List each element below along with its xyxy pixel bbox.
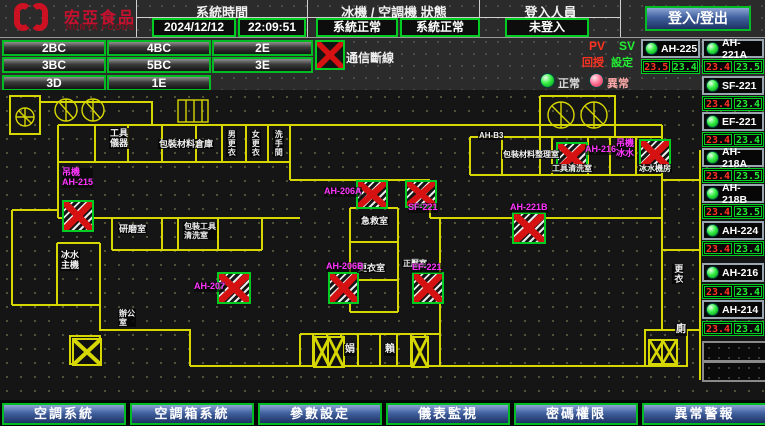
stairs-icon [16, 99, 607, 128]
system-time-value: 22:09:51 [238, 18, 306, 37]
header-bar: 宏亞食品 HUNYA FOODS 系統時間 2024/12/12 22:09:5… [0, 0, 765, 38]
room-label: 辦公 室 [118, 309, 136, 327]
offline-unit-ah-206b[interactable] [328, 272, 359, 304]
unit-name: AH-214 [722, 304, 758, 316]
unit-sf-221-values: 23.4 23.4 [702, 96, 764, 111]
unit-name: AH-225 [661, 43, 697, 55]
hunya-logo-icon [14, 3, 60, 33]
status-led-icon [706, 151, 719, 164]
unit-ah-218b-values: 23.4 23.5 [702, 204, 764, 219]
plan-unit-label: SF-221 [408, 203, 438, 213]
sv-value: 23.5 [734, 206, 762, 217]
pv-value: 23.4 [704, 134, 732, 145]
room-label: 冰水 主機 [60, 250, 80, 271]
separator-line [620, 0, 621, 38]
elevator-icon [661, 339, 678, 365]
unit-ah-218b[interactable]: AH-218B [702, 184, 764, 203]
room-label: 工具清洗室 [551, 164, 593, 173]
separator-line [136, 0, 137, 38]
login-user-value: 未登入 [505, 18, 589, 37]
unit-ah-218a[interactable]: AH-218A [702, 148, 764, 167]
plan-unit-label: AH-206A [324, 187, 362, 197]
sv-value: 23.5 [734, 170, 762, 181]
status-led-icon [706, 224, 719, 237]
room-label: 冰水機房 [638, 164, 672, 173]
unit-ah-216[interactable]: AH-216 [702, 263, 764, 282]
unit-ah-221a-values: 23.4 23.5 [702, 59, 764, 74]
sv-sub-label: 設定 [611, 54, 633, 70]
plan-unit-label: AH-221B [510, 203, 548, 213]
plan-unit-label: 吊機 冰水 [616, 139, 634, 159]
room-label: 急救室 [360, 216, 389, 226]
floor-button-3e[interactable]: 3E [212, 57, 313, 73]
unit-ah-221a[interactable]: AH-221A [702, 39, 764, 58]
unit-ah-214-values: 23.4 23.4 [702, 321, 764, 336]
room-label: 男更衣 [226, 130, 237, 157]
brand-subtitle: HUNYA FOODS [66, 23, 135, 32]
unit-ah-216-values: 23.4 23.4 [702, 284, 764, 299]
separator-line [0, 37, 765, 38]
pv-value: 23.4 [704, 170, 732, 181]
sv-value: 23.4 [734, 243, 762, 254]
elevator-icon [411, 336, 429, 368]
unit-name: AH-218B [722, 182, 762, 206]
nav-button-parameter-settings[interactable]: 參數設定 [258, 403, 382, 425]
nav-button-meter-monitor[interactable]: 儀表監視 [386, 403, 510, 425]
status-led-icon [645, 42, 658, 55]
unit-name: SF-221 [722, 80, 756, 92]
pv-value: 23.4 [704, 286, 732, 297]
empty-unit-slot [702, 341, 765, 362]
offline-unit-ef-221[interactable] [412, 272, 444, 304]
room-label: 賴 [384, 344, 396, 356]
system-date-value: 2024/12/12 [152, 18, 236, 37]
pv-header: PV [589, 39, 605, 53]
abnormal-led-icon [589, 73, 604, 88]
room-label: 工具 儀器 [109, 128, 129, 149]
status-led-icon [706, 187, 719, 200]
unit-name: AH-221A [722, 37, 762, 61]
normal-label: 正常 [558, 75, 580, 91]
floor-button-1e[interactable]: 1E [107, 75, 211, 91]
room-label: 研磨室 [118, 224, 147, 234]
elevator-icon [327, 336, 345, 368]
room-label: 包裝材料整理室 [502, 150, 560, 159]
sv-value: 23.4 [734, 134, 762, 145]
unit-name: AH-224 [722, 225, 758, 237]
status-led-icon [706, 79, 719, 92]
unit-name: AH-216 [722, 267, 758, 279]
bottom-nav-bar: 空調系統 空調箱系統 參數設定 儀表監視 密碼權限 異常警報 [0, 400, 765, 426]
pv-value: 23.4 [704, 323, 732, 334]
plan-unit-label: 吊機 AH-215 [62, 168, 93, 188]
abnormal-label: 異常 [607, 75, 629, 91]
nav-button-ahu-system[interactable]: 空調箱系統 [130, 403, 254, 425]
plan-unit-label: AH-216 [585, 145, 616, 155]
unit-name: AH-218A [722, 146, 762, 170]
unit-ah-224-values: 23.4 23.4 [702, 241, 764, 256]
room-label: 包裝工具 清洗室 [183, 222, 217, 240]
room-label: 洗手間 [273, 130, 284, 157]
pv-sub-label: 回授 [582, 54, 604, 70]
floor-plan: 工具 儀器 包裝材料倉庫 男更衣 女更衣 洗手間 AH-B3 包裝材料整理室 工… [0, 90, 765, 402]
comm-loss-label: 通信斷線 [346, 49, 394, 66]
sv-value: 23.5 [734, 61, 762, 72]
separator-line [307, 0, 308, 38]
unit-name: EF-221 [722, 116, 756, 128]
nav-button-ac-system[interactable]: 空調系統 [2, 403, 126, 425]
floor-button-2bc[interactable]: 2BC [2, 40, 106, 56]
login-logout-button[interactable]: 登入/登出 [645, 6, 751, 31]
pv-value: 23.4 [704, 243, 732, 254]
status-led-icon [706, 42, 719, 55]
room-label: AH-B3 [478, 131, 504, 140]
sv-value: 23.4 [672, 61, 699, 72]
room-label: 娟 [344, 344, 356, 356]
unit-ah-225[interactable]: AH-225 [641, 39, 700, 58]
chiller-status-value: 系統正常 [316, 18, 398, 37]
floor-button-5bc[interactable]: 5BC [107, 57, 211, 73]
sv-value: 23.4 [734, 98, 762, 109]
pv-value: 23.4 [704, 206, 732, 217]
elevator-icon [72, 338, 102, 366]
pv-value: 23.4 [704, 98, 732, 109]
nav-button-alarm[interactable]: 異常警報 [642, 403, 765, 425]
offline-unit-ah-221b[interactable] [512, 212, 546, 244]
floor-button-2e[interactable]: 2E [212, 40, 313, 56]
plan-unit-label: EF-221 [412, 263, 442, 273]
unit-ef-221[interactable]: EF-221 [702, 112, 764, 131]
room-label: 廁 [675, 324, 687, 336]
ac-status-value: 系統正常 [400, 18, 480, 37]
sv-header: SV [619, 39, 635, 53]
offline-unit-ah-215[interactable] [62, 200, 94, 232]
floor-button-3d[interactable]: 3D [2, 75, 106, 91]
unit-sf-221[interactable]: SF-221 [702, 76, 764, 95]
plan-unit-label: AH-206B [326, 262, 364, 272]
sv-value: 23.4 [734, 286, 762, 297]
unit-ah-224[interactable]: AH-224 [702, 221, 764, 240]
pv-value: 23.5 [643, 61, 670, 72]
nav-button-password-permission[interactable]: 密碼權限 [514, 403, 638, 425]
room-label: 女更衣 [250, 130, 261, 157]
status-led-icon [706, 266, 719, 279]
status-led-icon [706, 115, 719, 128]
floor-button-3bc[interactable]: 3BC [2, 57, 106, 73]
status-led-icon [706, 303, 719, 316]
pv-value: 23.4 [704, 61, 732, 72]
hmi-screen: 宏亞食品 HUNYA FOODS 系統時間 2024/12/12 22:09:5… [0, 0, 765, 426]
room-label: 更衣 [672, 264, 684, 284]
comm-loss-icon [315, 40, 345, 70]
unit-ah-214[interactable]: AH-214 [702, 300, 764, 319]
floor-button-4bc[interactable]: 4BC [107, 40, 211, 56]
plan-unit-label: AH-207 [194, 282, 225, 292]
sv-value: 23.4 [734, 323, 762, 334]
empty-unit-slot [702, 361, 765, 382]
unit-ah-225-values: 23.5 23.4 [641, 59, 700, 74]
room-label: 包裝材料倉庫 [158, 139, 214, 149]
normal-led-icon [540, 73, 555, 88]
